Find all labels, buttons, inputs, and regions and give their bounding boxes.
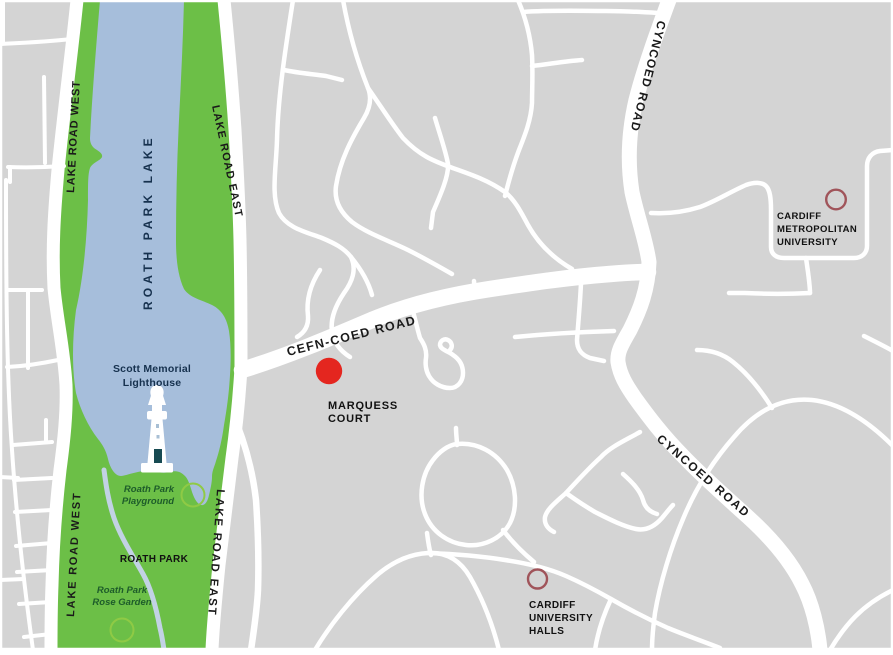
svg-text:COURT: COURT: [328, 413, 371, 425]
svg-text:Playground: Playground: [122, 496, 174, 507]
svg-text:Lighthouse: Lighthouse: [123, 377, 182, 389]
svg-text:CARDIFF: CARDIFF: [529, 600, 576, 611]
svg-text:Roath Park: Roath Park: [124, 484, 175, 495]
svg-text:HALLS: HALLS: [529, 626, 564, 637]
svg-text:ROATH PARK: ROATH PARK: [120, 554, 189, 565]
svg-text:Rose Garden: Rose Garden: [92, 597, 151, 608]
svg-text:ROATH PARK LAKE: ROATH PARK LAKE: [141, 134, 155, 310]
svg-text:Scott Memorial: Scott Memorial: [113, 363, 191, 375]
svg-text:UNIVERSITY: UNIVERSITY: [777, 237, 838, 248]
svg-text:CARDIFF: CARDIFF: [777, 211, 822, 222]
svg-text:Roath Park: Roath Park: [97, 585, 148, 596]
svg-text:UNIVERSITY: UNIVERSITY: [529, 613, 593, 624]
svg-text:MARQUESS: MARQUESS: [328, 400, 398, 412]
svg-text:METROPOLITAN: METROPOLITAN: [777, 224, 857, 235]
